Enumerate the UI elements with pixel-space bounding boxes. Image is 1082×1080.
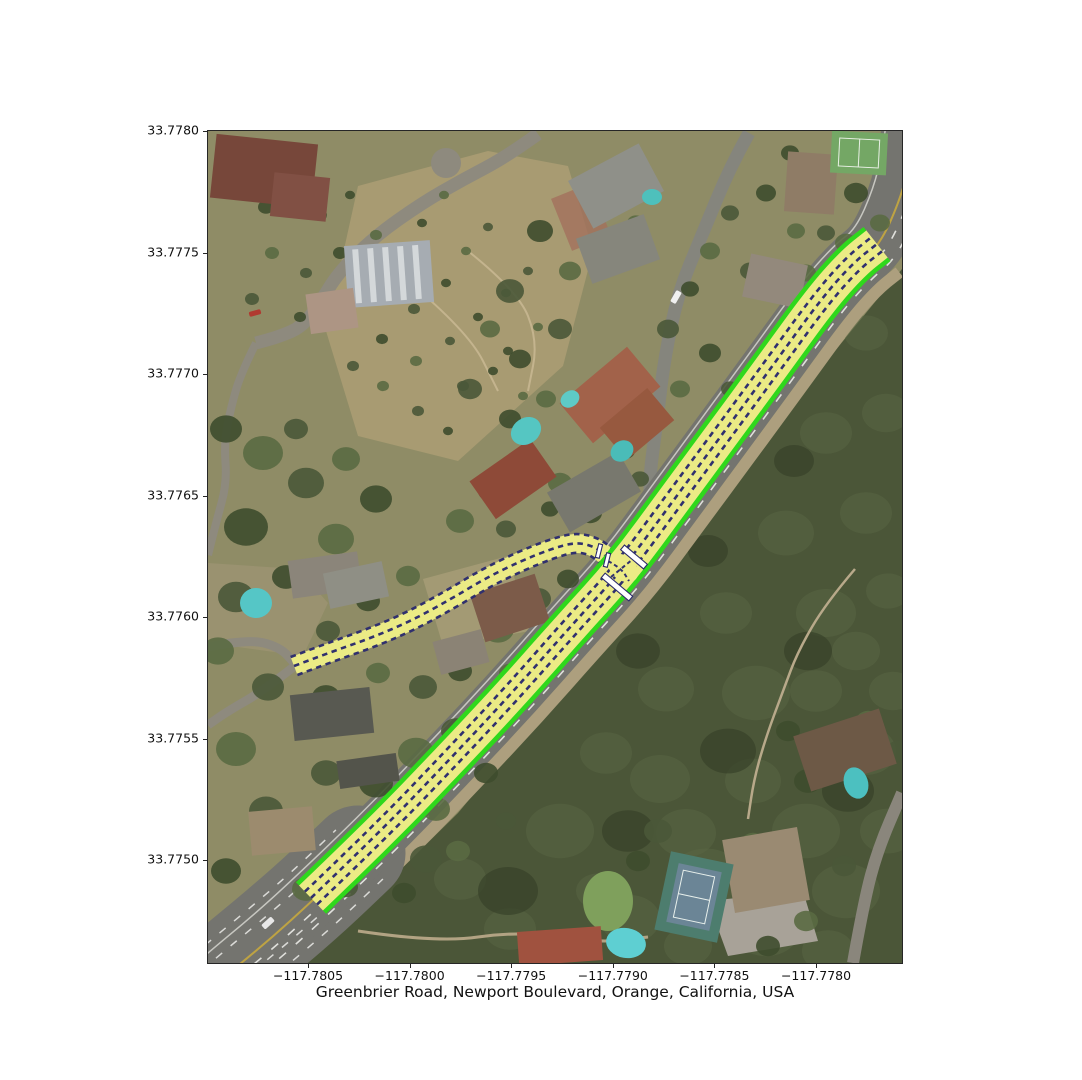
shrub-patch: [796, 589, 856, 637]
y-tick-mark: [203, 253, 208, 254]
tree: [794, 911, 818, 931]
plot-title: Greenbrier Road, Newport Boulevard, Oran…: [316, 983, 794, 1002]
tree: [518, 392, 528, 401]
shrub-patch: [580, 732, 632, 774]
x-tick-label: −117.7800: [375, 970, 445, 983]
tree: [681, 281, 699, 296]
x-tick-label: −117.7790: [578, 970, 648, 983]
y-tick-label: 33.7775: [147, 246, 199, 259]
y-tick-label: 33.7765: [147, 489, 199, 502]
tennis-court-top: [830, 131, 888, 175]
house-roof: [248, 806, 316, 855]
tree: [396, 566, 420, 586]
tree: [496, 521, 516, 538]
tree: [832, 856, 856, 876]
y-tick-mark: [203, 131, 208, 132]
tree: [294, 312, 306, 322]
tree: [409, 675, 437, 699]
tree: [509, 350, 531, 369]
tree: [817, 225, 835, 240]
tree: [366, 663, 390, 683]
tree-shadow: [616, 633, 660, 668]
lawn: [583, 871, 633, 931]
x-tick-mark: [816, 963, 817, 968]
tree: [376, 334, 388, 344]
x-tick-mark: [613, 963, 614, 968]
tree: [316, 621, 340, 641]
tree-shadow: [784, 632, 832, 670]
tree: [345, 191, 355, 200]
y-tick-label: 33.7770: [147, 368, 199, 381]
shrub-patch: [758, 511, 814, 556]
y-tick-mark: [203, 374, 208, 375]
tree: [210, 415, 242, 442]
shrub-patch: [722, 666, 790, 720]
x-tick-mark: [308, 963, 309, 968]
tree: [408, 304, 420, 314]
tree: [787, 223, 805, 238]
tree: [446, 509, 474, 533]
tree: [626, 851, 650, 871]
x-tick-label: −117.7795: [476, 970, 546, 983]
house-roof: [290, 687, 374, 741]
tree: [300, 268, 312, 278]
tree-shadow: [700, 729, 756, 774]
tree: [657, 320, 679, 339]
tree: [318, 524, 354, 555]
house-roof: [305, 288, 358, 334]
tree: [216, 732, 256, 766]
x-tick-mark: [511, 963, 512, 968]
y-tick-label: 33.7750: [147, 854, 199, 867]
tree: [377, 381, 389, 391]
tree: [473, 313, 483, 322]
y-tick-label: 33.7780: [147, 125, 199, 138]
tree: [224, 508, 268, 545]
tree: [265, 247, 279, 259]
tree: [360, 485, 392, 512]
tree: [370, 230, 382, 240]
tree: [284, 419, 308, 439]
tree: [756, 936, 780, 956]
tree: [410, 845, 442, 872]
swimming-pool: [240, 588, 272, 618]
tree: [488, 367, 498, 376]
shrub-patch: [800, 412, 852, 454]
tree: [252, 673, 284, 700]
tree: [458, 379, 482, 399]
house-roof: [722, 827, 810, 913]
tree: [446, 841, 470, 861]
tree: [670, 381, 690, 398]
y-tick-label: 33.7760: [147, 611, 199, 624]
tree: [644, 819, 672, 843]
shrub-patch: [840, 492, 892, 534]
tree-shadow: [478, 867, 538, 915]
tree: [548, 319, 572, 339]
tree: [392, 883, 416, 903]
satellite-map: [208, 131, 902, 963]
tree: [441, 279, 451, 288]
tree: [496, 279, 524, 303]
tree: [721, 205, 739, 220]
tree-shadow: [774, 445, 814, 477]
y-tick-label: 33.7755: [147, 732, 199, 745]
tree: [699, 344, 721, 363]
tree: [536, 391, 556, 408]
y-tick-mark: [203, 496, 208, 497]
map-plot: 33.778033.777533.777033.776533.776033.77…: [207, 130, 903, 964]
cul-de-sac: [431, 148, 461, 178]
tree: [461, 247, 471, 256]
x-tick-label: −117.7780: [781, 970, 851, 983]
tree: [288, 468, 324, 499]
tree: [527, 220, 553, 242]
tree: [756, 185, 776, 202]
house-roof: [517, 926, 603, 963]
tree: [474, 763, 498, 783]
tree: [410, 356, 422, 366]
tree: [211, 858, 241, 884]
x-tick-label: −117.7805: [273, 970, 343, 983]
shrub-patch: [700, 592, 752, 634]
shrub-patch: [526, 804, 594, 858]
y-tick-mark: [203, 860, 208, 861]
tree: [445, 337, 455, 346]
tree: [523, 267, 533, 276]
tree: [412, 406, 424, 416]
house-roof: [270, 172, 330, 222]
tree: [533, 323, 543, 332]
tree: [439, 191, 449, 200]
y-tick-mark: [203, 739, 208, 740]
tree: [245, 293, 259, 305]
tree: [332, 447, 360, 471]
figure-canvas: { "figure": { "title": "Greenbrier Road,…: [0, 0, 1082, 1080]
shrub-patch: [790, 670, 842, 712]
tree: [496, 813, 516, 830]
shrub-patch: [630, 755, 690, 803]
tree: [557, 570, 579, 589]
house-roof: [784, 151, 838, 214]
tree: [347, 361, 359, 371]
tree: [243, 436, 283, 470]
tree: [844, 183, 868, 203]
tree: [311, 760, 341, 786]
tree: [870, 215, 890, 232]
tree: [417, 219, 427, 228]
shrub-patch: [832, 632, 880, 670]
tree: [700, 243, 720, 260]
shrub-patch: [638, 667, 694, 712]
x-tick-mark: [714, 963, 715, 968]
tree: [559, 262, 581, 281]
swimming-pool: [642, 189, 662, 205]
x-tick-mark: [410, 963, 411, 968]
x-tick-label: −117.7785: [679, 970, 749, 983]
y-tick-mark: [203, 617, 208, 618]
tree: [480, 321, 500, 338]
tree: [483, 223, 493, 232]
tree: [443, 427, 453, 436]
